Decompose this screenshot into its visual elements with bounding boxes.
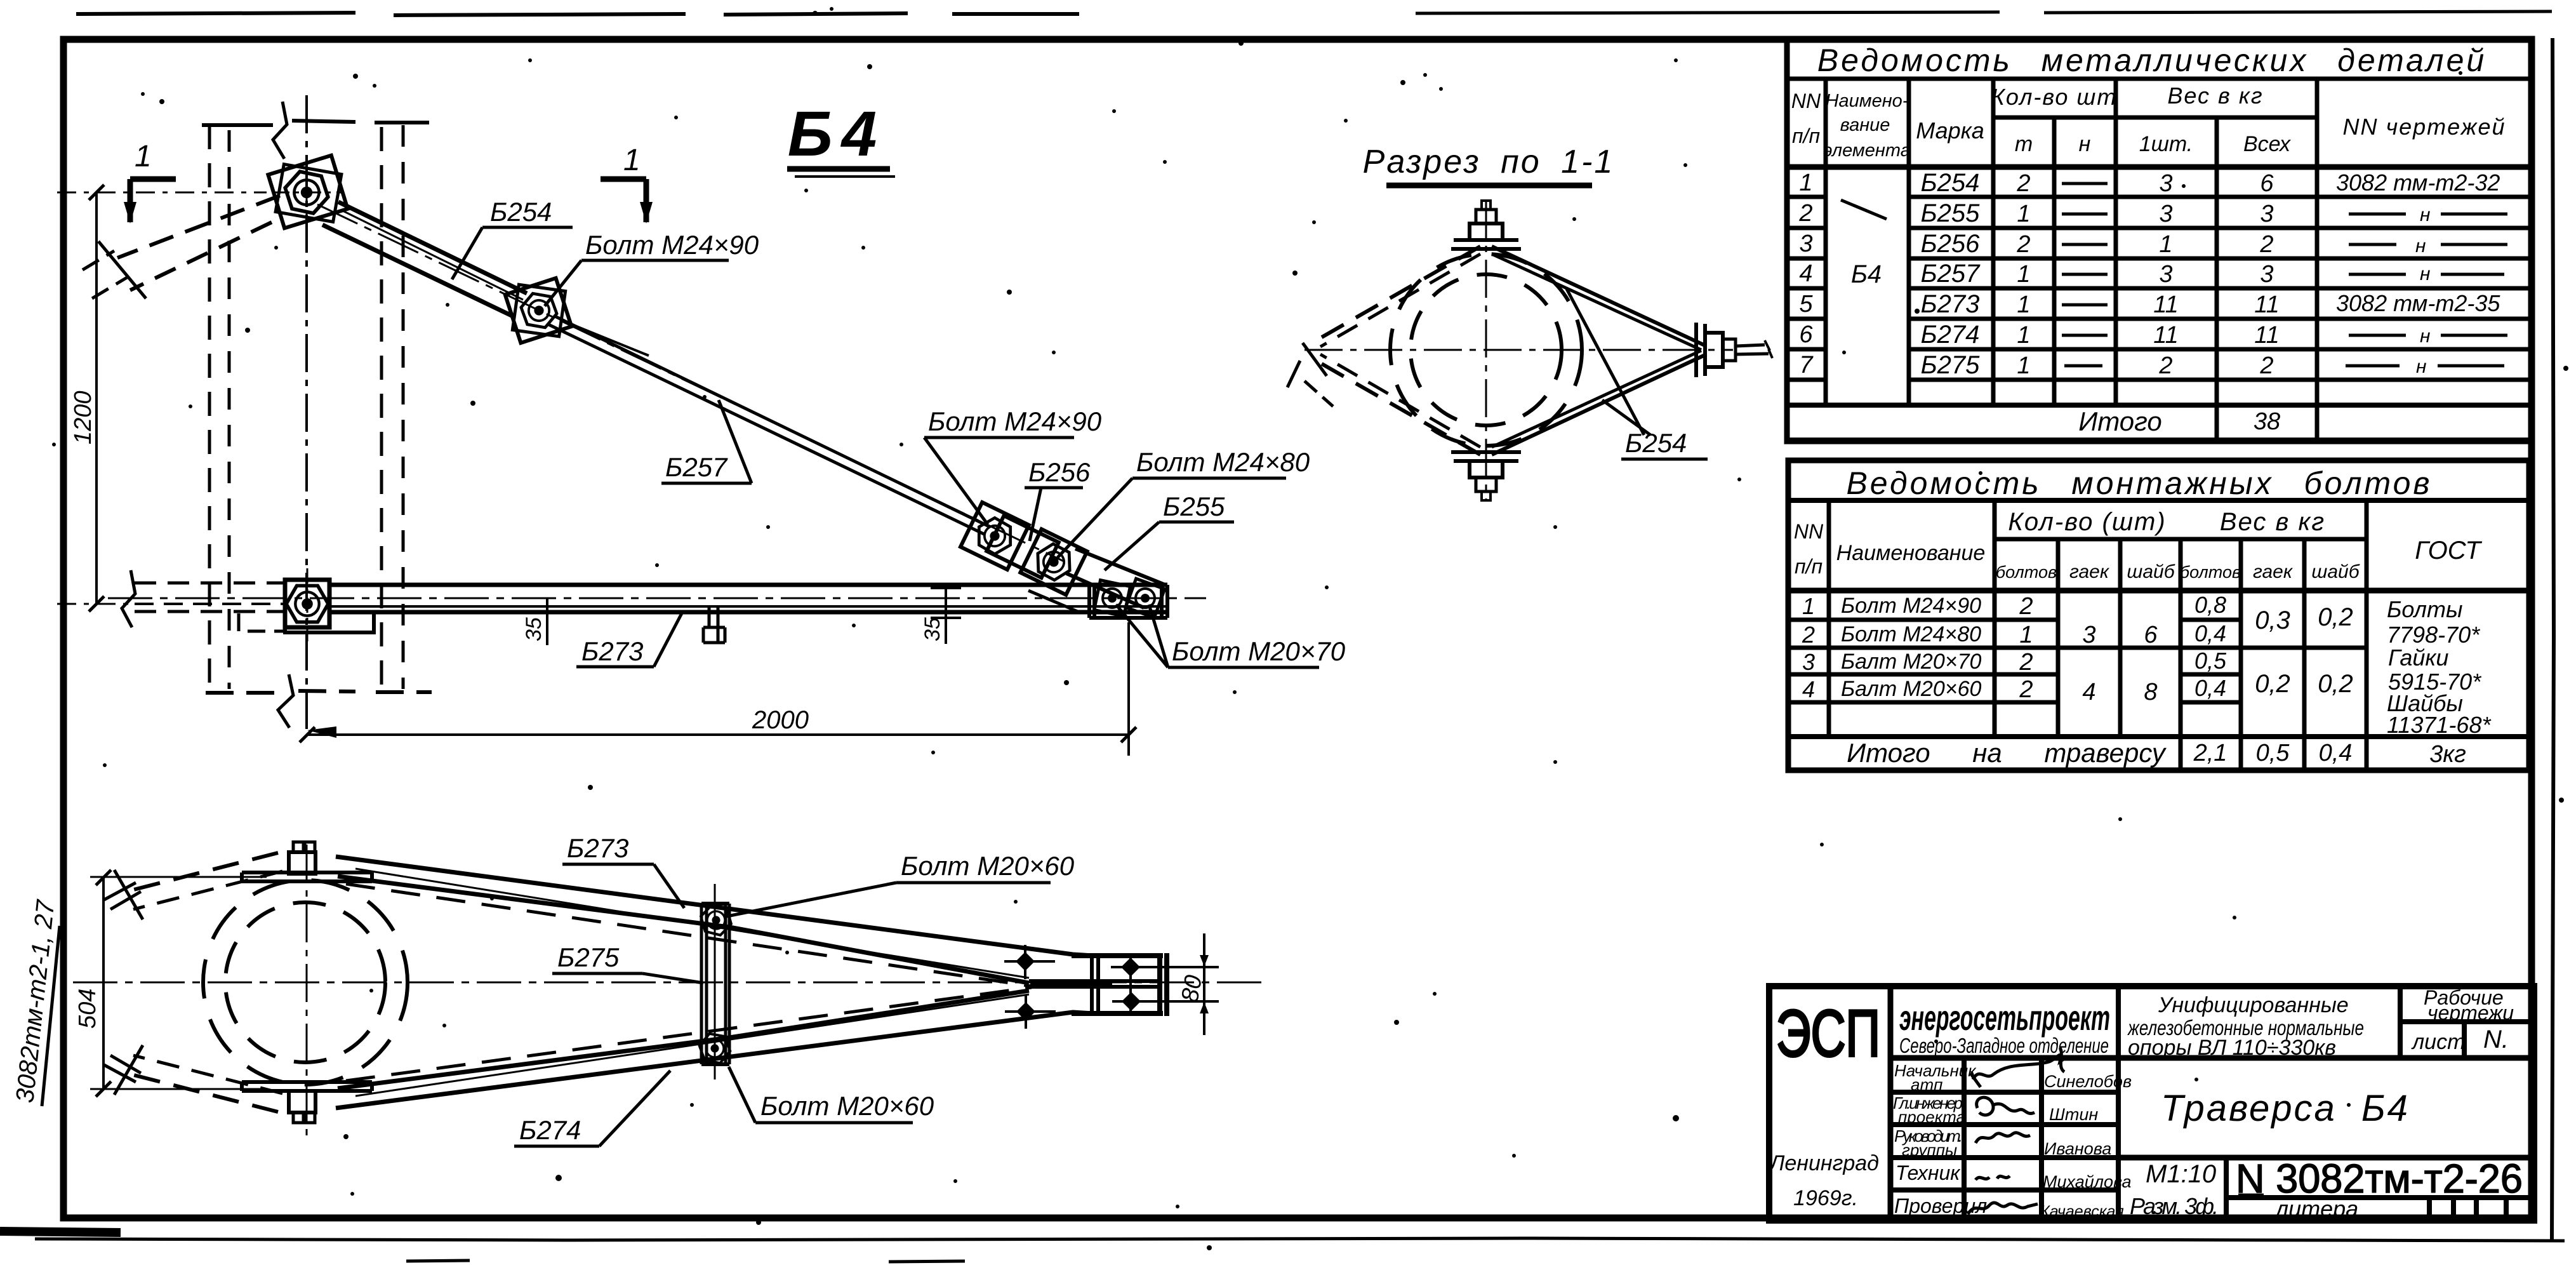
svg-text:7: 7 [1799,352,1814,378]
svg-text:Болты: Болты [2387,596,2462,622]
svg-text:7798-70*: 7798-70* [2387,622,2480,648]
svg-text:Болт М24×90: Болт М24×90 [585,230,759,260]
svg-text:н: н [2420,204,2431,225]
svg-text:0,8: 0,8 [2194,592,2226,618]
svg-text:энергосетьпроект: энергосетьпроект [1899,998,2110,1038]
svg-text:1: 1 [1802,593,1815,619]
svg-text:4: 4 [2082,679,2095,705]
svg-text:1: 1 [2159,231,2172,258]
svg-text:0,5: 0,5 [2256,740,2290,766]
svg-text:2: 2 [2019,649,2033,676]
svg-text:3: 3 [1799,231,1812,257]
svg-text:38: 38 [2254,408,2280,435]
svg-text:Болт М24×80: Болт М24×80 [1841,622,1981,646]
svg-text:н: н [2420,264,2431,284]
svg-text:Болт М24×90: Болт М24×90 [928,406,1102,436]
svg-text:элемента: элемента [1823,140,1911,161]
svg-text:Ведомость монтажных болтов: Ведомость монтажных болтов [1846,465,2432,501]
svg-text:6: 6 [1799,321,1813,348]
svg-text:Кол-во шт: Кол-во шт [1991,84,2118,110]
svg-text:11: 11 [2153,291,2178,318]
svg-text:Техник: Техник [1895,1161,1961,1184]
svg-text:35: 35 [920,617,945,641]
svg-text:2: 2 [2019,676,2033,703]
svg-text:0,2: 0,2 [2255,670,2290,698]
svg-text:п/п: п/п [1792,124,1820,147]
svg-text:3: 3 [2159,201,2172,227]
svg-text:Иванова: Иванова [2044,1139,2111,1158]
svg-text:Болт М20×60: Болт М20×60 [760,1091,934,1121]
svg-text:504: 504 [74,989,101,1029]
svg-text:вание: вание [1840,115,1890,135]
svg-text:0,2: 0,2 [2318,603,2353,631]
svg-text:чертежи: чертежи [2427,1001,2514,1024]
svg-text:1: 1 [1799,170,1812,196]
svg-text:Б254: Б254 [1625,428,1687,458]
svg-text:1: 1 [2017,291,2030,318]
svg-text:0,5: 0,5 [2194,648,2227,674]
svg-text:шайб: шайб [2127,561,2175,582]
svg-text:т: т [2015,132,2033,156]
svg-text:11371-68*: 11371-68* [2387,712,2491,738]
svg-text:Северо-Западное отделение: Северо-Западное отделение [1899,1034,2109,1057]
svg-text:литера: литера [2274,1196,2358,1222]
svg-text:атп: атп [1911,1075,1942,1094]
svg-text:Б275: Б275 [557,942,620,972]
svg-text:35: 35 [522,617,546,641]
svg-text:Унифицированные: Унифицированные [2158,993,2349,1017]
svg-text:1: 1 [2019,622,2033,648]
svg-text:6: 6 [2144,622,2158,648]
svg-text:Ведомость металлических дета: Ведомость металлических деталей [1817,43,2487,78]
svg-text:Б274: Б274 [1921,321,1980,349]
svg-text:11: 11 [2254,322,2279,349]
svg-text:гаек: гаек [2253,561,2294,582]
svg-text:н: н [2415,236,2426,257]
svg-text:Б273: Б273 [1921,290,1980,318]
svg-text:3: 3 [2260,261,2273,288]
svg-text:Итого: Итого [2078,406,2162,436]
svg-text:Б257: Б257 [665,452,728,482]
svg-text:Б256: Б256 [1921,230,1981,258]
svg-text:3: 3 [2082,622,2095,648]
svg-text:болтов: болтов [2180,563,2241,582]
svg-text:Б4: Б4 [1851,260,1882,288]
svg-text:Синелобов: Синелобов [2044,1072,2132,1091]
svg-text:3: 3 [2159,261,2172,288]
svg-text:1200: 1200 [70,391,96,444]
svg-text:шайб: шайб [2311,561,2360,582]
svg-text:п/п: п/п [1795,555,1822,578]
svg-text:3082 тм-т2-35: 3082 тм-т2-35 [2336,290,2500,316]
svg-text:ЭСП: ЭСП [1776,997,1880,1071]
svg-text:болтов: болтов [1996,563,2057,582]
svg-text:Б275: Б275 [1921,351,1981,379]
svg-text:NN чертежей: NN чертежей [2342,114,2506,140]
svg-text:1шт.: 1шт. [2139,132,2193,156]
svg-text:2: 2 [1802,622,1815,648]
svg-text:1: 1 [2017,261,2030,288]
svg-text:4: 4 [1799,260,1812,287]
svg-text:Штин: Штин [2049,1105,2098,1124]
svg-text:3кг: 3кг [2429,741,2466,768]
svg-text:2: 2 [1798,200,1812,227]
svg-text:Б255: Б255 [1163,491,1225,521]
svg-text:3: 3 [2260,201,2273,227]
svg-text:Всех: Всех [2243,132,2291,156]
svg-text:Михайлова: Михайлова [2043,1172,2132,1191]
svg-text:Траверса Б4: Траверса Б4 [2161,1088,2410,1129]
svg-text:N.: N. [2483,1026,2509,1053]
svg-text:1: 1 [623,144,641,177]
svg-text:Б255: Б255 [1921,199,1981,227]
svg-text:Вес в кг: Вес в кг [2167,83,2263,109]
svg-text:1969г.: 1969г. [1793,1186,1858,1210]
svg-text:Ленинград: Ленинград [1769,1151,1879,1175]
svg-text:Болт М24×80: Болт М24×80 [1136,447,1310,477]
svg-text:2000: 2000 [752,706,809,734]
svg-text:0,2: 0,2 [2318,670,2353,698]
svg-text:NN: NN [1794,520,1824,543]
svg-text:11: 11 [2254,291,2279,318]
svg-text:лист: лист [2411,1030,2465,1054]
svg-text:80: 80 [1177,973,1208,1005]
svg-text:Болт М20×60: Болт М20×60 [901,851,1075,881]
svg-text:н: н [2420,326,2431,347]
svg-text:2,1: 2,1 [2193,740,2227,766]
svg-text:опоры ВЛ 110÷330кв: опоры ВЛ 110÷330кв [2128,1036,2336,1060]
svg-text:Кол-во (шт): Кол-во (шт) [2008,508,2166,536]
svg-text:2: 2 [2016,231,2030,258]
svg-text:3: 3 [1802,649,1815,675]
svg-text:Б4: Б4 [788,98,886,170]
svg-text:3082 тм-т2-32: 3082 тм-т2-32 [2336,170,2500,196]
svg-text:2: 2 [2259,231,2273,258]
svg-text:11: 11 [2153,322,2178,349]
svg-text:1: 1 [2017,352,2030,379]
svg-text:гаек: гаек [2069,561,2110,582]
svg-text:0,4: 0,4 [2194,675,2226,701]
svg-text:4: 4 [1802,676,1815,702]
svg-text:Наимено-: Наимено- [1826,91,1909,111]
svg-text:N 3082тм-т2-26: N 3082тм-т2-26 [2236,1156,2523,1201]
svg-text:Гайки: Гайки [2388,645,2448,671]
svg-text:Болт М20×70: Болт М20×70 [1172,636,1346,666]
svg-text:н: н [2079,132,2091,156]
svg-text:Вес в кг: Вес в кг [2220,508,2325,536]
svg-text:Марка: Марка [1916,117,1984,144]
svg-text:М1:10: М1:10 [2146,1160,2216,1188]
svg-text:группы: группы [1902,1140,1957,1160]
svg-text:Разм. 3ф.: Разм. 3ф. [2130,1193,2219,1219]
svg-text:н: н [2416,356,2427,377]
svg-text:Болт М24×90: Болт М24×90 [1841,594,1981,618]
svg-text:6: 6 [2260,170,2274,197]
svg-text:NN: NN [1791,90,1821,112]
svg-text:2: 2 [2016,170,2030,197]
svg-text:Б274: Б274 [519,1115,581,1145]
svg-text:0,4: 0,4 [2194,620,2226,646]
svg-text:0,3: 0,3 [2255,606,2290,634]
svg-text:Проверил: Проверил [1894,1194,1987,1217]
svg-text:8: 8 [2144,679,2157,705]
svg-text:Б256: Б256 [1028,457,1091,487]
svg-text:Б273: Б273 [567,833,628,863]
svg-text:Б254: Б254 [490,197,552,227]
svg-text:2: 2 [2158,352,2172,379]
svg-text:Балт М20×60: Балт М20×60 [1841,677,1982,701]
svg-text:Б273: Б273 [581,636,643,666]
svg-text:3: 3 [2159,170,2172,197]
svg-text:Б254: Б254 [1921,169,1980,197]
svg-text:Наименование: Наименование [1836,541,1986,565]
svg-text:0,4: 0,4 [2319,740,2353,766]
svg-text:проекта: проекта [1898,1107,1965,1126]
svg-text:2: 2 [2019,593,2033,620]
svg-text:1: 1 [135,140,152,173]
svg-text:1: 1 [2017,322,2030,349]
svg-text:Разрез по 1-1: Разрез по 1-1 [1363,144,1615,180]
svg-text:Итого на траверсу: Итого на траверсу [1847,738,2167,768]
svg-text:Качаевская: Качаевская [2040,1203,2124,1220]
svg-text:5: 5 [1799,291,1813,317]
svg-text:2: 2 [2259,352,2273,379]
svg-text:ГОСТ: ГОСТ [2415,537,2482,565]
svg-text:Б257: Б257 [1921,260,1981,288]
svg-text:1: 1 [2017,201,2030,227]
svg-text:Балт М20×70: Балт М20×70 [1841,650,1982,674]
